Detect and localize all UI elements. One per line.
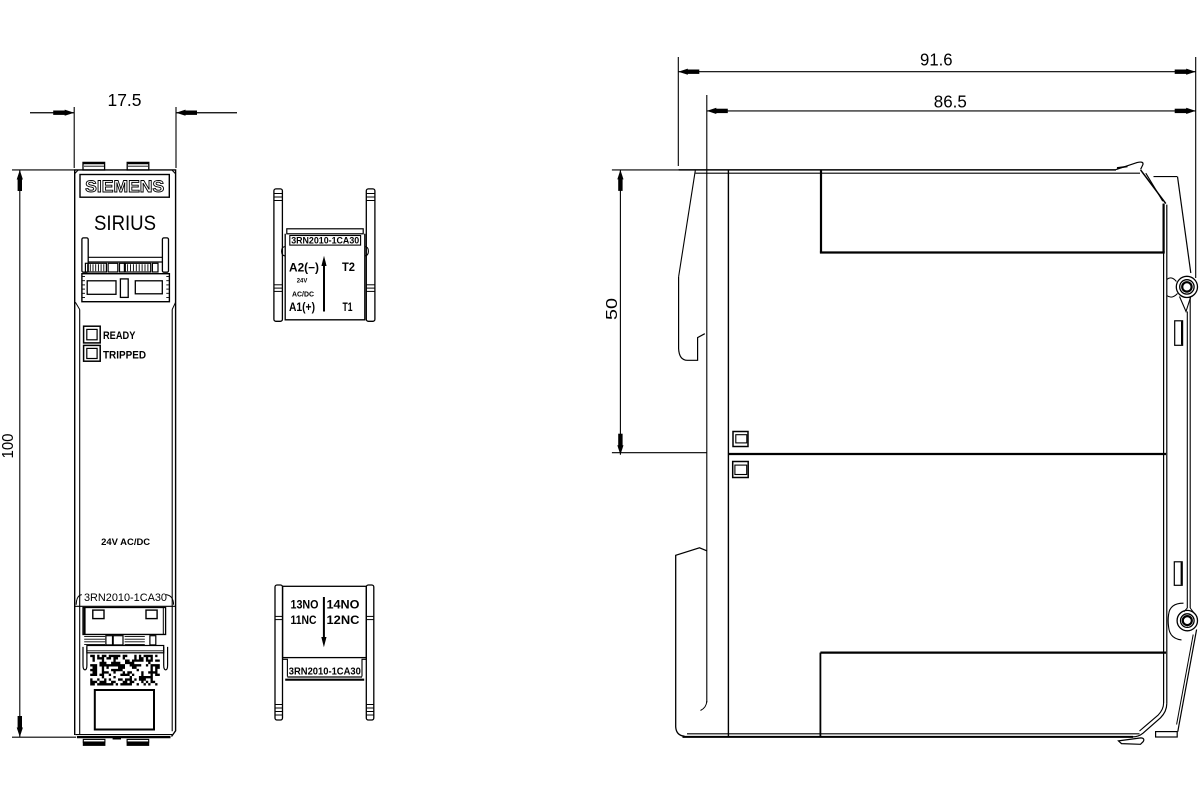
svg-text:100: 100 — [0, 433, 17, 458]
svg-text:50: 50 — [604, 298, 621, 320]
svg-text:11NC: 11NC — [291, 613, 317, 627]
svg-text:24V: 24V — [297, 277, 308, 284]
svg-text:A2(−): A2(−) — [289, 262, 319, 275]
svg-text:AC/DC: AC/DC — [292, 289, 315, 298]
svg-text:T2: T2 — [342, 261, 355, 274]
svg-text:17.5: 17.5 — [108, 90, 142, 110]
svg-text:READY: READY — [103, 330, 136, 342]
svg-text:TRIPPED: TRIPPED — [103, 350, 146, 362]
svg-text:3RN2010-1CA30: 3RN2010-1CA30 — [291, 235, 359, 245]
svg-text:A1(+): A1(+) — [289, 301, 315, 314]
svg-text:86.5: 86.5 — [934, 91, 967, 111]
svg-text:13NO: 13NO — [291, 598, 319, 612]
svg-text:3RN2010-1CA30: 3RN2010-1CA30 — [289, 667, 361, 678]
svg-text:24V AC/DC: 24V AC/DC — [101, 537, 150, 547]
svg-text:T1: T1 — [343, 301, 353, 314]
svg-text:91.6: 91.6 — [920, 50, 953, 70]
svg-text:SIEMENS: SIEMENS — [85, 177, 164, 196]
svg-text:12NC: 12NC — [327, 613, 360, 627]
svg-text:SIRIUS: SIRIUS — [94, 212, 156, 235]
svg-text:14NO: 14NO — [327, 598, 360, 612]
svg-text:3RN2010-1CA30: 3RN2010-1CA30 — [84, 592, 167, 604]
